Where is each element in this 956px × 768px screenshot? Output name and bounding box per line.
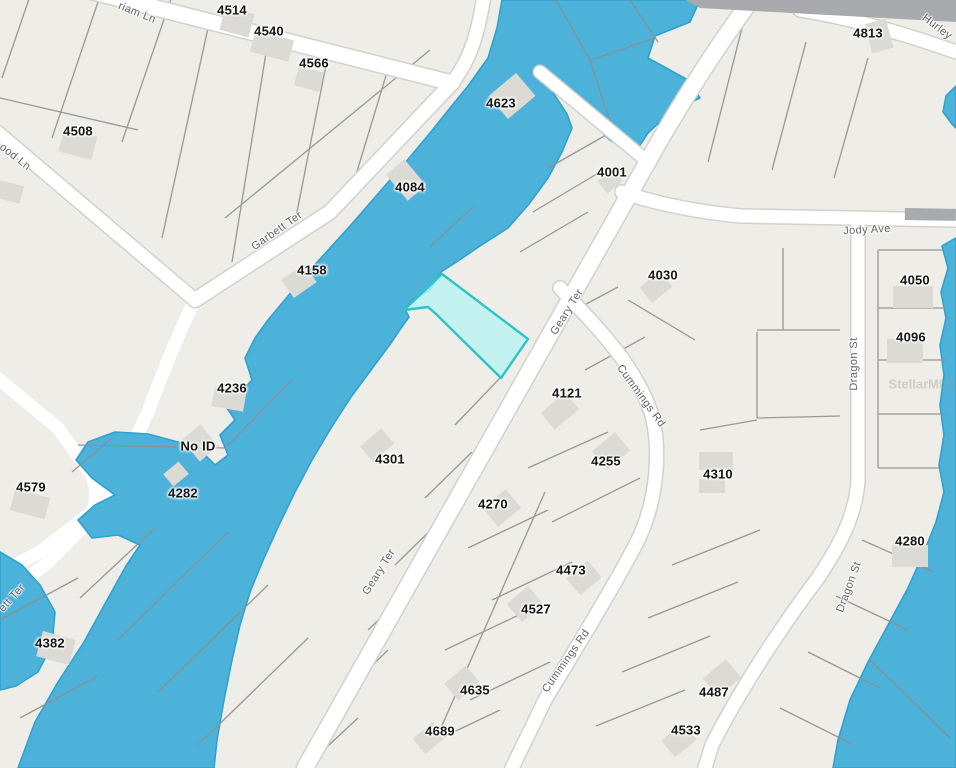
map-base [0,0,956,768]
map-canvas[interactable]: StellarMLS 45144540456646234508408440014… [0,0,956,768]
major-road-jody-east [905,208,956,221]
